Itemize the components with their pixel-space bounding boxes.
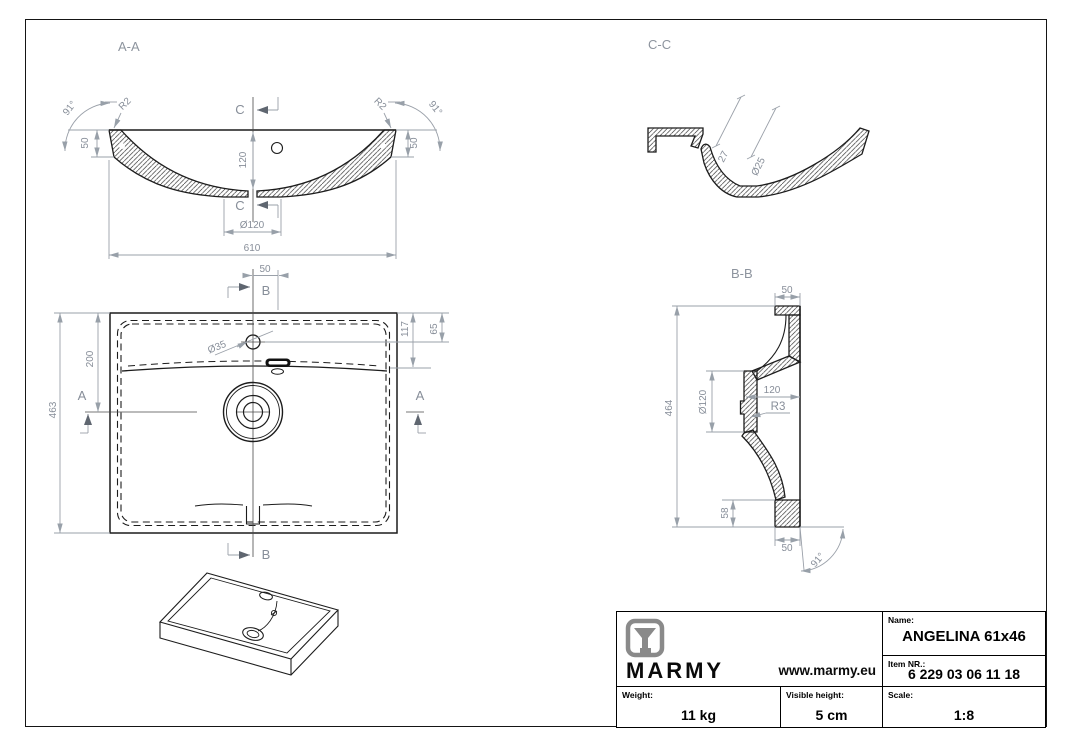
- website-text: www.marmy.eu: [778, 663, 876, 678]
- title-block-visible-height-cell: Visible height: 5 cm: [781, 687, 883, 727]
- aa-rim-groove-right: [380, 143, 386, 149]
- aa-angle-right: 91°: [426, 99, 444, 118]
- bb-web-upper: [752, 356, 800, 380]
- aa-radius-right: R2: [371, 96, 388, 113]
- bb-height-dim: 464: [664, 399, 675, 416]
- plan-depth-dim: 463: [48, 401, 59, 418]
- bb-foot: [775, 500, 800, 527]
- plan-overflow-slot-inner: [269, 361, 288, 365]
- bb-drain-dia-dim: Ø120: [698, 389, 709, 414]
- aa-width-dim: 610: [244, 243, 261, 254]
- plan-section-b-top-marker: B: [228, 283, 270, 298]
- iso-tap-hole: [259, 591, 273, 601]
- section-cc-view: C-C 27 Ø25: [648, 37, 869, 197]
- plan-rim-hidden-edge-inner: [121, 324, 386, 522]
- cc-offset-dim: 27: [716, 149, 731, 164]
- plan-section-a-left-marker: A: [78, 388, 88, 433]
- bb-foot-width-dim: 50: [781, 543, 793, 554]
- weight-value: 11 kg: [617, 707, 780, 723]
- product-name: ANGELINA 61x46: [883, 628, 1045, 645]
- title-block-brand-cell: MARMY www.marmy.eu: [617, 612, 883, 687]
- aa-cut-marker-top: C: [235, 97, 278, 117]
- name-label: Name:: [883, 612, 1045, 625]
- plan-basin-front-edge: [122, 366, 387, 371]
- bb-angle-dim: 91°: [809, 551, 827, 570]
- bb-drain-offset-dim: 120: [764, 385, 781, 396]
- aa-rim-height-right: 50: [409, 137, 420, 149]
- scale-value: 1:8: [883, 707, 1045, 723]
- title-block-item-cell: Item NR.: 6 229 03 06 11 18: [883, 656, 1045, 687]
- section-cc-label: C-C: [648, 37, 671, 52]
- aa-rim-groove-left: [119, 143, 125, 149]
- plan-rim-dim: 117: [400, 321, 411, 337]
- plan-section-a-right-letter: A: [416, 388, 425, 403]
- isometric-view: [160, 573, 338, 675]
- aa-shell-right: [257, 130, 396, 197]
- aa-overflow-hole: [272, 143, 283, 154]
- bb-drain-boss: [741, 371, 758, 432]
- cc-deck-piece: [648, 128, 703, 152]
- bb-fillet-dim: R3: [771, 401, 786, 413]
- plan-tap-offset-dim: 50: [259, 264, 271, 275]
- title-block-weight-cell: Weight: 11 kg: [617, 687, 781, 727]
- aa-cut-marker-bottom: C: [235, 198, 278, 218]
- iso-drain: [241, 626, 264, 643]
- title-block-scale-cell: Scale: 1:8: [883, 687, 1045, 727]
- plan-section-a-left-letter: A: [78, 388, 87, 403]
- aa-cut-letter-top: C: [235, 102, 244, 117]
- bb-foot-height-dim: 58: [720, 507, 731, 519]
- bb-web-lower: [742, 430, 785, 500]
- plan-tap-edge-dim: 65: [429, 323, 440, 335]
- aa-shell-left: [109, 130, 248, 197]
- plan-view: Ø35 B 50: [48, 264, 449, 562]
- plan-rim-hidden-edge-outer: [118, 321, 390, 526]
- aa-cut-letter-bottom: C: [235, 198, 244, 213]
- item-nr-value: 6 229 03 06 11 18: [883, 666, 1045, 682]
- aa-depth-dim: 120: [238, 151, 249, 168]
- cc-overflow-dia-dim: Ø25: [750, 156, 769, 178]
- bb-wall: [789, 315, 800, 362]
- section-aa-label: A-A: [118, 39, 140, 54]
- bb-deck: [775, 306, 800, 315]
- aa-angle-left: 91°: [61, 99, 79, 118]
- section-bb-label: B-B: [731, 266, 753, 281]
- title-block-name-cell: Name: ANGELINA 61x46: [883, 612, 1045, 656]
- plan-section-b-bottom-letter: B: [262, 547, 271, 562]
- plan-section-b-top-letter: B: [262, 283, 271, 298]
- section-bb-view: B-B 50 464 Ø120 1: [664, 266, 844, 571]
- plan-basin-hidden-curve: [128, 361, 380, 366]
- brand-wordmark: MARMY: [626, 658, 724, 684]
- title-block: MARMY www.marmy.eu Name: ANGELINA 61x46 …: [616, 611, 1046, 728]
- section-aa-view: A-A 120 C C: [61, 39, 444, 259]
- aa-drain-dim: Ø120: [240, 220, 265, 231]
- scale-label: Scale:: [883, 687, 1045, 700]
- plan-overflow-shadow: [272, 369, 284, 375]
- bb-deck-width-dim: 50: [781, 285, 793, 296]
- plan-center-dim: 200: [85, 350, 96, 367]
- aa-radius-left: R2: [117, 96, 134, 113]
- weight-label: Weight:: [617, 687, 780, 700]
- visible-height-label: Visible height:: [781, 687, 882, 700]
- plan-outer-outline: [110, 313, 397, 533]
- visible-height-value: 5 cm: [781, 707, 882, 723]
- technical-drawing-page: A-A 120 C C: [0, 0, 1078, 750]
- iso-inner-rim: [168, 578, 330, 653]
- plan-section-a-right-marker: A: [416, 388, 426, 433]
- aa-rim-height-left: 50: [80, 137, 91, 149]
- plan-section-b-bottom-marker: B: [228, 543, 270, 562]
